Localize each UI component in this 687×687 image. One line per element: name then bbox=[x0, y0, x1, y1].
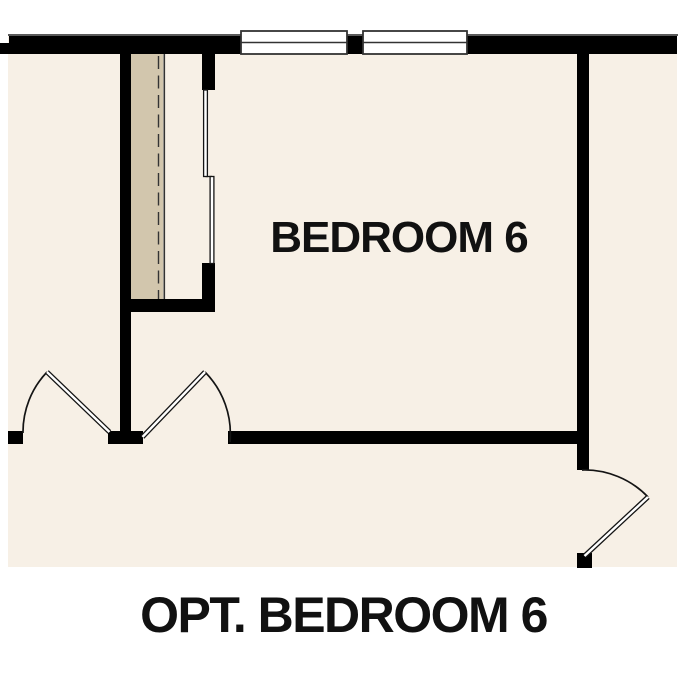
exterior-wall-top-left-step bbox=[0, 43, 9, 54]
double-door-left-jamb bbox=[8, 431, 23, 444]
plan-canvas bbox=[0, 0, 687, 687]
floor-plan: BEDROOM 6 OPT. BEDROOM 6 bbox=[0, 0, 687, 687]
closet-jamb-bottom bbox=[202, 263, 215, 300]
floor-area bbox=[8, 35, 677, 567]
plan-caption: OPT. BEDROOM 6 bbox=[0, 589, 687, 641]
closet-sliding-panel-1 bbox=[204, 90, 208, 177]
bedroom-wall-bottom bbox=[228, 431, 589, 444]
double-door-center-post bbox=[108, 431, 143, 444]
window-2 bbox=[363, 31, 467, 54]
closet-jamb-top bbox=[202, 54, 215, 90]
window-1 bbox=[241, 31, 347, 54]
closet-wall-bottom bbox=[120, 299, 215, 312]
bedroom-wall-right bbox=[577, 54, 589, 470]
room-label: BEDROOM 6 bbox=[99, 214, 687, 262]
